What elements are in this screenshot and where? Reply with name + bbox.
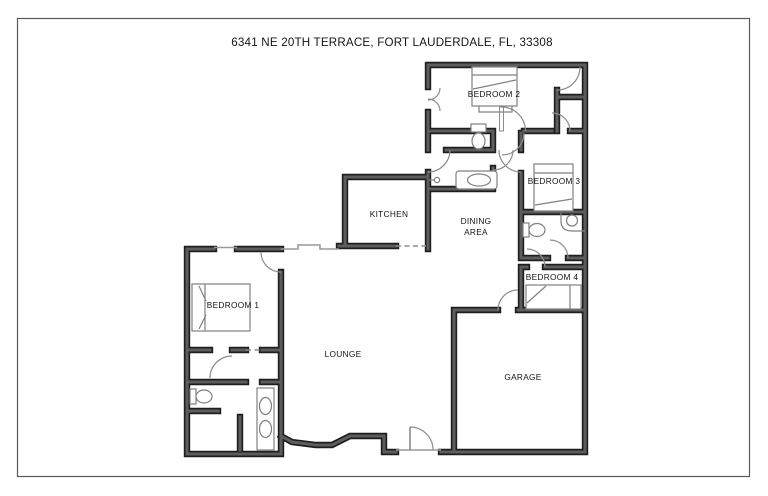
room-label-dining-line1: DINING — [461, 216, 492, 226]
door-bathroom-left — [210, 356, 232, 378]
door-cabana-bath — [428, 150, 450, 172]
room-label-kitchen: KITCHEN — [370, 209, 409, 219]
door-bedroom2 — [502, 107, 526, 131]
room-label-bedroom4: BEDROOM 4 — [526, 272, 579, 282]
door-leaf-bedroom2 — [500, 107, 504, 131]
cased-openings — [246, 246, 426, 350]
room-label-garage: GARAGE — [504, 372, 541, 382]
walls-core — [187, 65, 585, 454]
floor-plan-drawing: 6341 NE 20TH TERRACE, FORT LAUDERDALE, F… — [0, 0, 768, 496]
door-entry — [410, 427, 433, 450]
plan-title: 6341 NE 20TH TERRACE, FORT LAUDERDALE, F… — [231, 36, 552, 49]
toilet-central-bath — [471, 124, 486, 149]
floor-plan-page: 6341 NE 20TH TERRACE, FORT LAUDERDALE, F… — [0, 0, 768, 496]
french-door-bedroom2 — [428, 88, 440, 111]
bed-bedroom4 — [526, 285, 581, 309]
room-label-bedroom2: BEDROOM 2 — [468, 89, 521, 99]
room-label-lounge: LOUNGE — [325, 349, 362, 359]
toilet-bedroom3-bath — [523, 223, 545, 237]
room-label-dining-line2: AREA — [464, 227, 488, 237]
bed-bedroom3 — [534, 164, 573, 211]
room-label-bedroom1: BEDROOM 1 — [207, 300, 260, 310]
toilet-left-bath — [190, 389, 212, 404]
room-label-bedroom3: BEDROOM 3 — [528, 176, 581, 186]
door-closet-top — [557, 67, 580, 90]
vanity-double-sink — [257, 388, 274, 450]
window-lounge — [281, 245, 339, 249]
